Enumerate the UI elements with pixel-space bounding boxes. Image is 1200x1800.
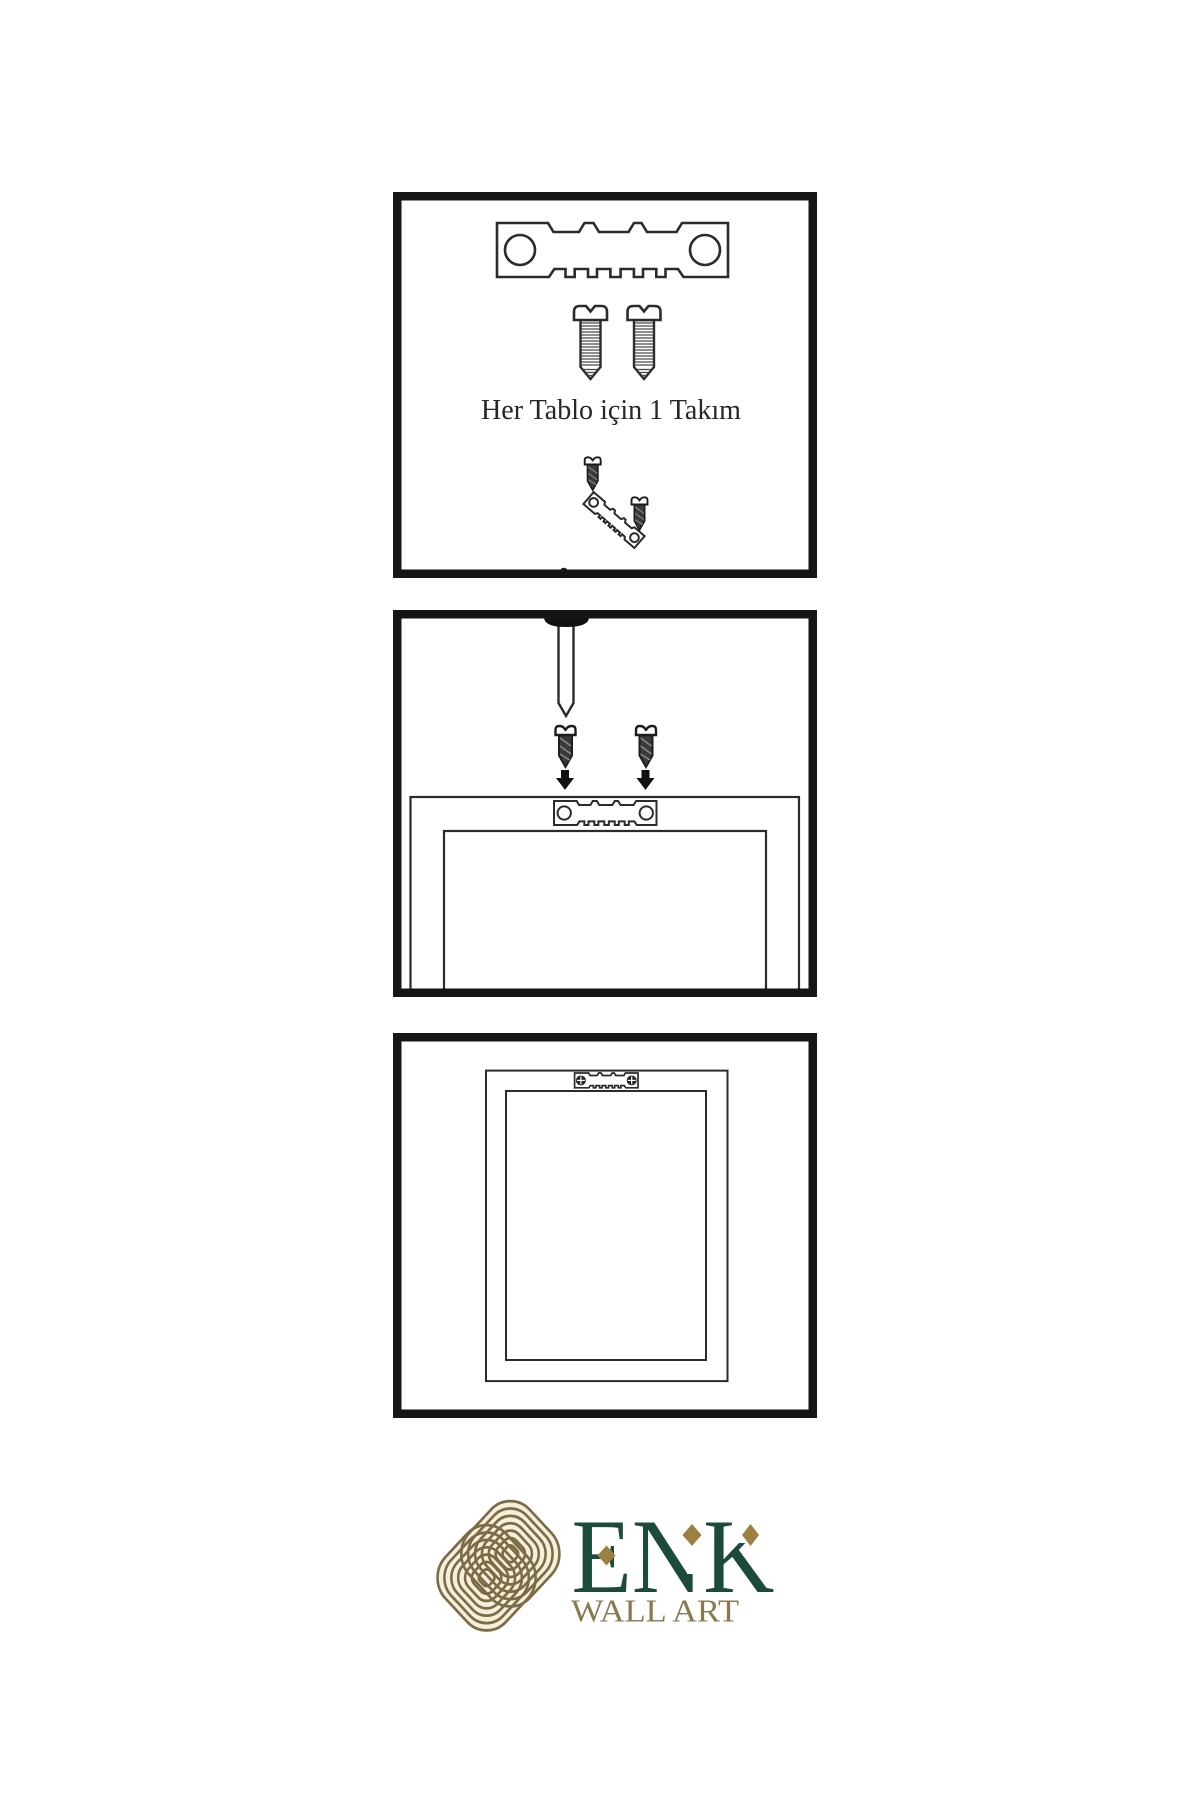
svg-text:Her Tablo için 1 Takım: Her Tablo için 1 Takım bbox=[481, 394, 741, 426]
svg-text:WALL ART: WALL ART bbox=[571, 1593, 739, 1629]
